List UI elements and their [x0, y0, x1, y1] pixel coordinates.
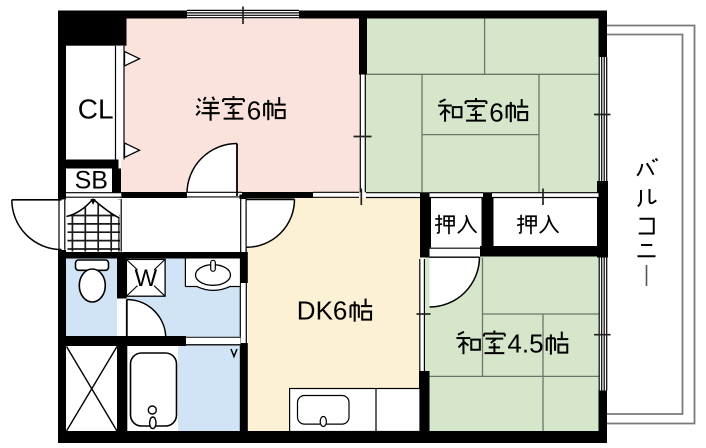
svg-text:6: 6 — [489, 98, 503, 128]
svg-text:6: 6 — [247, 96, 261, 126]
svg-text:DK6: DK6 — [297, 296, 348, 326]
svg-text:SB: SB — [75, 167, 108, 195]
svg-text:CL: CL — [78, 94, 114, 125]
svg-text:W: W — [134, 265, 157, 292]
svg-text:4.5: 4.5 — [507, 329, 543, 359]
